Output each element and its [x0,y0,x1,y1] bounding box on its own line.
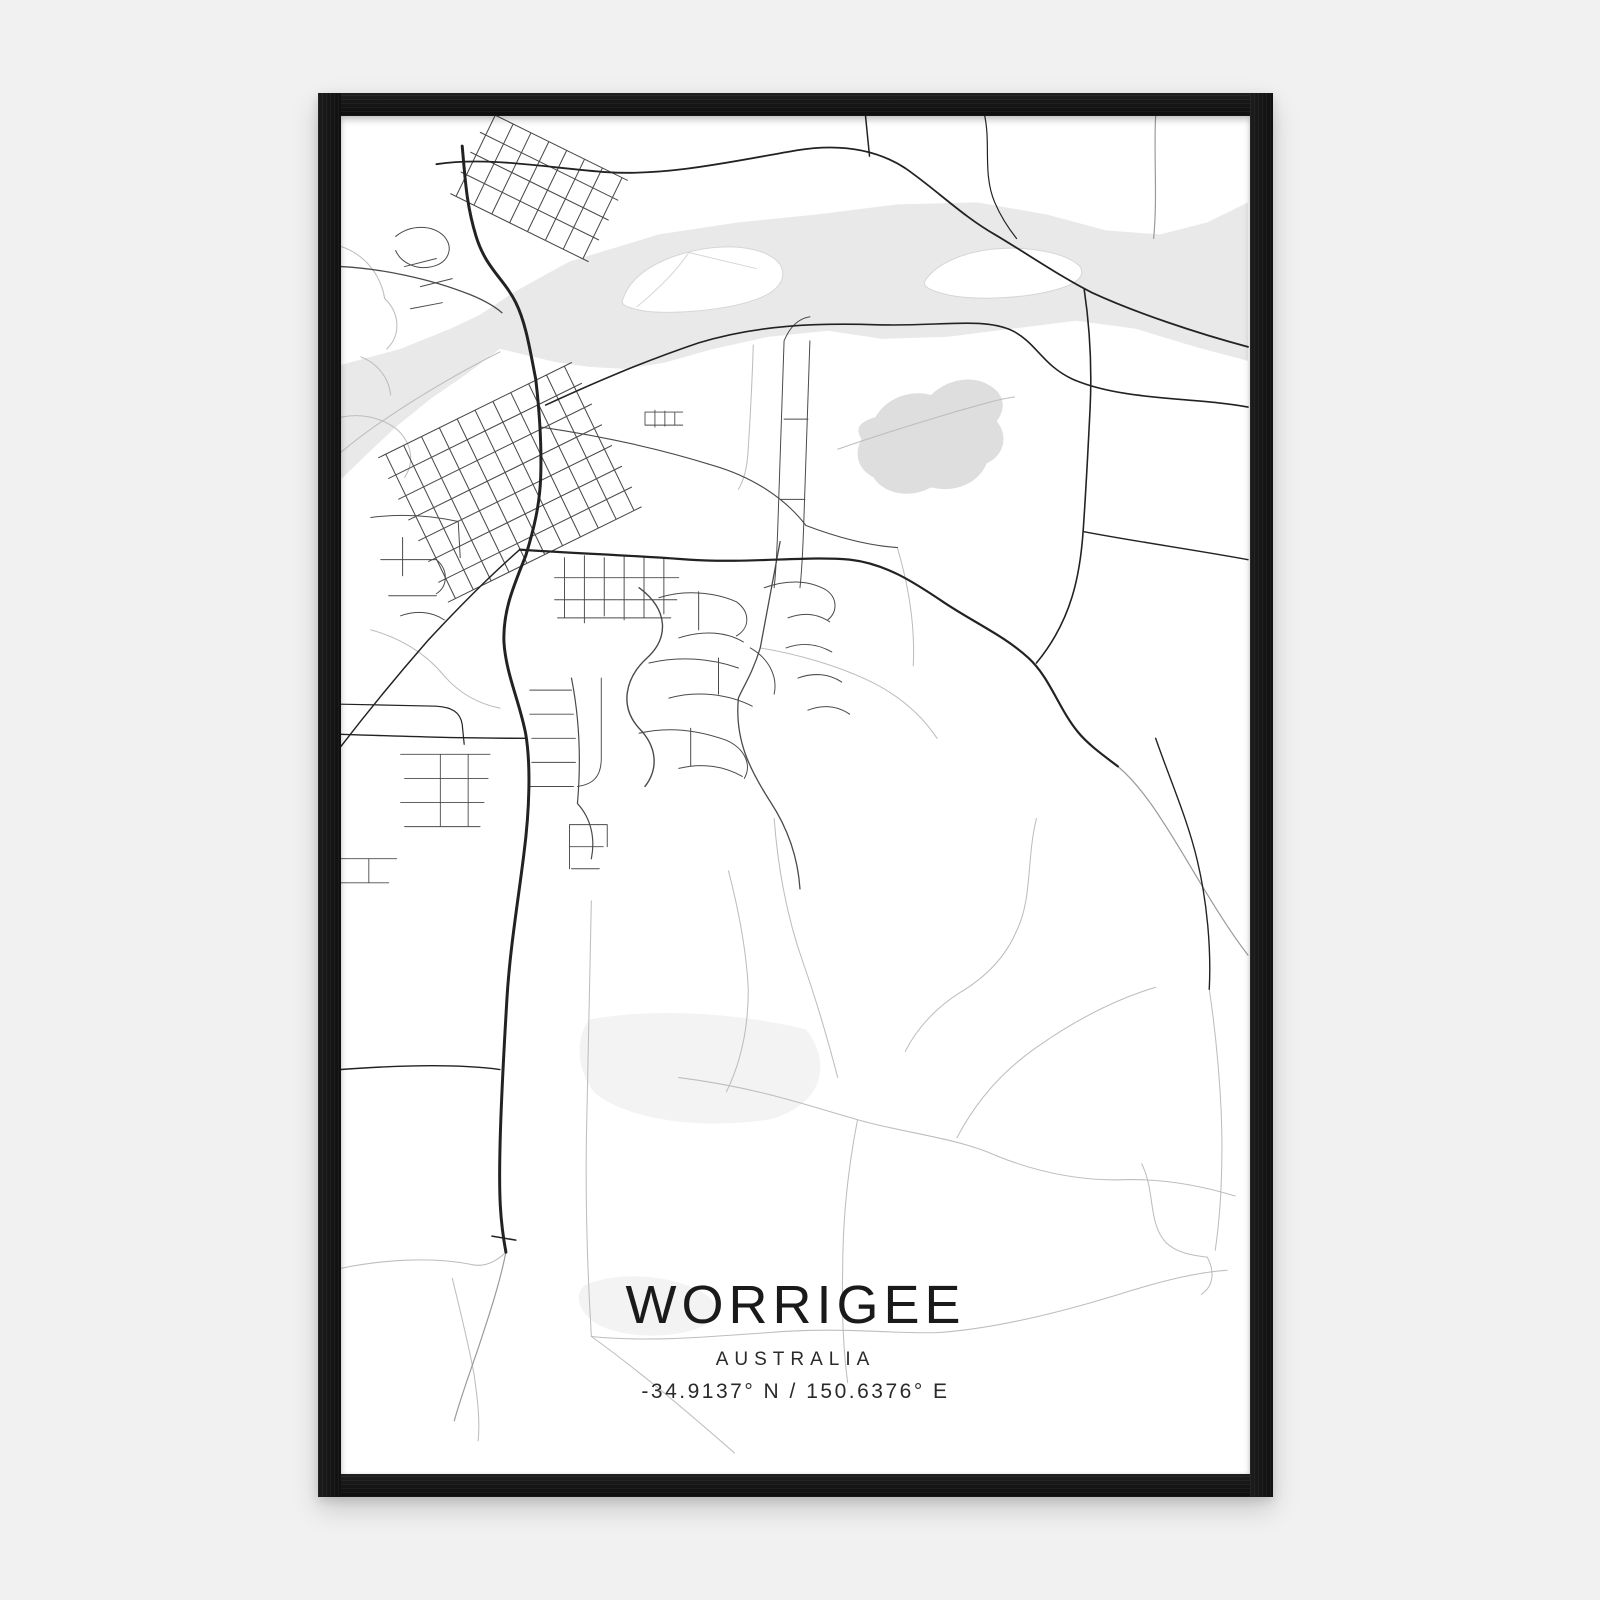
river-shape [341,202,1248,479]
city-name: WORRIGEE [341,1276,1250,1335]
frame-edge-left [318,93,341,1497]
poster-frame: WORRIGEE AUSTRALIA -34.9137° N / 150.637… [318,93,1273,1497]
frame-edge-bottom [318,1474,1273,1497]
wall-background: WORRIGEE AUSTRALIA -34.9137° N / 150.637… [0,0,1600,1600]
rural-road-network [341,246,1235,1452]
poster-paper: WORRIGEE AUSTRALIA -34.9137° N / 150.637… [341,116,1250,1474]
frame-edge-right [1250,93,1273,1497]
street-map [341,116,1250,1474]
country-name: AUSTRALIA [341,1349,1250,1371]
coordinates-label: -34.9137° N / 150.6376° E [341,1380,1250,1404]
frame-edge-top [318,93,1273,116]
reserve-areas [579,380,1004,1336]
